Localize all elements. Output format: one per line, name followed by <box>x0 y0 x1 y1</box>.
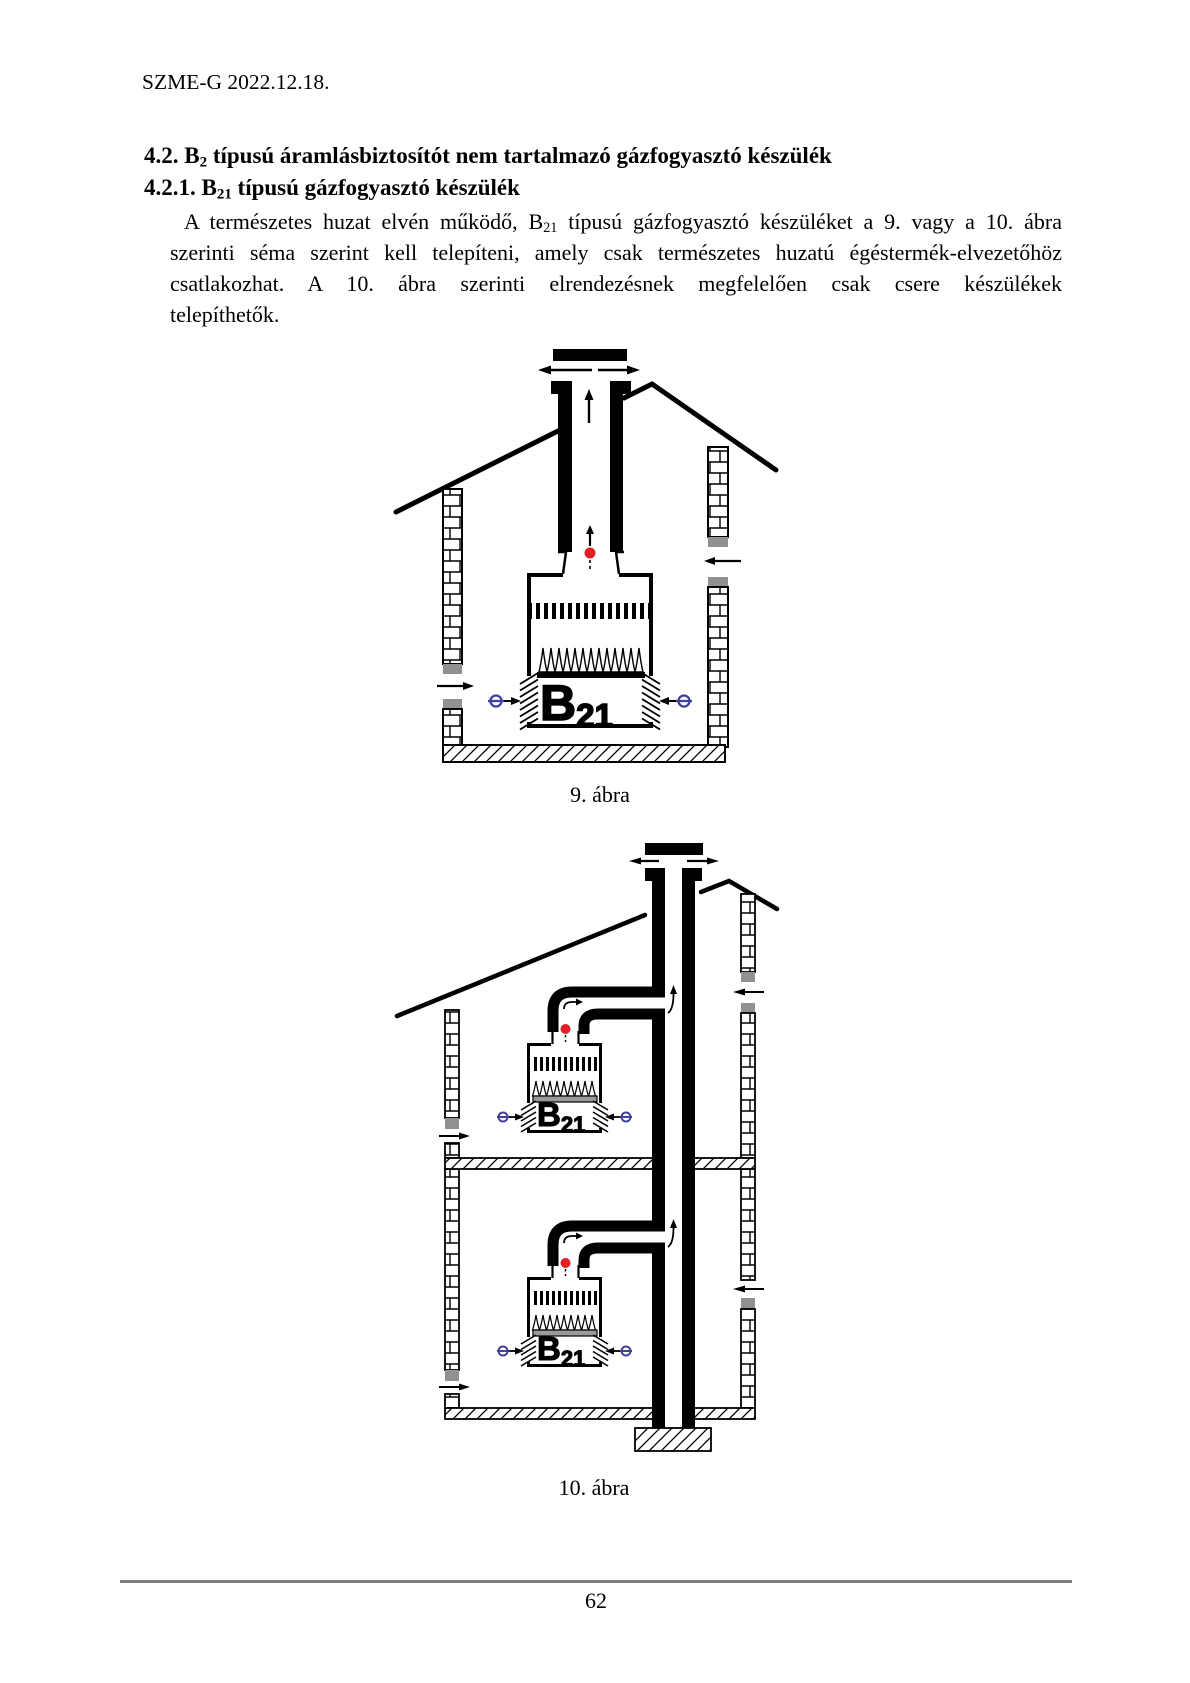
air-inlet-marker-right <box>605 1113 632 1122</box>
appliance-type-label: B21 <box>540 675 613 734</box>
footer-rule <box>120 1580 1072 1583</box>
body-paragraph: A természetes huzat elvén működő, B21 tí… <box>170 206 1062 330</box>
chimney-foundation <box>635 1428 711 1451</box>
paragraph-subscript: 21 <box>543 220 557 236</box>
b21-appliance-upper: B21 <box>497 1045 632 1138</box>
burner-flames <box>539 648 643 672</box>
ground-slab <box>445 1408 755 1419</box>
left-wall <box>443 489 462 745</box>
figure-10-caption: 10. ábra <box>414 1475 774 1501</box>
burner-flames <box>533 1315 596 1330</box>
document-page: SZME-G 2022.12.18. 4.2. B2 típusú áramlá… <box>0 0 1190 1683</box>
air-inlet-marker-left <box>488 696 521 707</box>
flue-gas-point <box>561 1024 571 1034</box>
heading-text: 4.2. B <box>144 143 200 168</box>
heading-text: 4.2.1. B <box>144 175 217 200</box>
figure-9-caption: 9. ábra <box>420 782 780 808</box>
draught-up-arrow <box>585 389 594 423</box>
heading-subscript: 2 <box>200 154 207 170</box>
page-header: SZME-G 2022.12.18. <box>142 70 330 95</box>
section-heading-4-2: 4.2. B2 típusú áramlásbiztosítót nem tar… <box>144 143 832 169</box>
heading-subscript: 21 <box>217 186 232 202</box>
air-inlet-marker-right <box>605 1347 632 1356</box>
flue-gas-point <box>561 1258 571 1268</box>
heat-exchanger-grille <box>531 603 651 619</box>
figure-9-single-storey-b21-diagram: B21 <box>390 315 820 765</box>
flue-outlet-arrows <box>538 366 640 375</box>
ground-slab <box>443 745 725 762</box>
chimney <box>645 843 703 1428</box>
right-wall <box>708 447 728 747</box>
air-inlet-marker-left <box>497 1347 524 1356</box>
paragraph-text: típusú gázfogyasztó készüléket a 9. vagy… <box>557 209 1062 234</box>
page-number: 62 <box>516 1588 676 1614</box>
section-heading-4-2-1: 4.2.1. B21 típusú gázfogyasztó készülék <box>144 175 520 201</box>
figure-10-two-storey-b21-diagram: B21 <box>390 838 800 1458</box>
floor-slab <box>445 1158 755 1169</box>
paragraph-text: A természetes huzat elvén működő, B <box>184 209 543 234</box>
left-wall <box>445 1010 459 1408</box>
heat-exchanger-grille <box>531 1057 599 1071</box>
flue-outlet-arrows <box>629 858 719 865</box>
paragraph-line: szerinti séma szerint kell telepíteni, a… <box>170 237 1062 268</box>
heading-text: típusú gázfogyasztó készülék <box>232 175 520 200</box>
paragraph-line: csatlakozhat. A 10. ábra szerinti elrend… <box>170 268 1062 299</box>
paragraph-line: A természetes huzat elvén működő, B21 tí… <box>170 206 1062 237</box>
burner-flames <box>533 1081 596 1096</box>
b21-appliance-lower: B21 <box>497 1279 632 1372</box>
air-inlet-marker-right <box>659 696 692 707</box>
b21-appliance: B21 <box>488 575 692 734</box>
heading-text: típusú áramlásbiztosítót nem tartalmazó … <box>207 143 832 168</box>
air-inlet-marker-left <box>497 1113 524 1122</box>
flue-gas-point <box>585 525 596 571</box>
right-wall <box>741 894 755 1408</box>
heat-exchanger-grille <box>531 1291 599 1305</box>
